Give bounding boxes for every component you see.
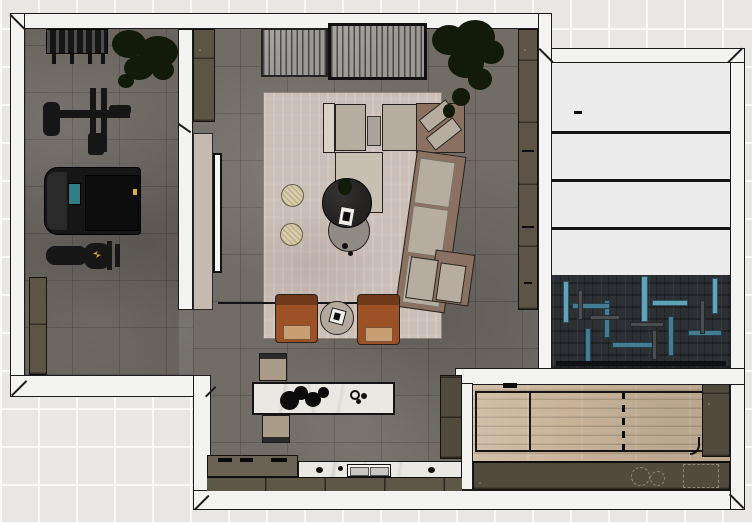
slatted-sideboard-framed[interactable] <box>328 23 427 80</box>
shelf-band-divider <box>552 131 730 134</box>
table-sprig-plant <box>338 178 352 195</box>
sofa-tray <box>367 116 381 146</box>
rack-leg <box>52 54 56 64</box>
plant-foliage <box>468 68 492 90</box>
gray-plank <box>590 315 620 320</box>
shelf-mark <box>522 226 534 228</box>
counter-item <box>338 466 343 471</box>
gray-plank <box>578 290 583 320</box>
plant-foliage <box>118 74 134 88</box>
sofa-cushion[interactable] <box>382 104 418 151</box>
treadmill-belt <box>85 175 139 231</box>
wall-left <box>10 13 25 397</box>
teal-plank <box>563 281 569 323</box>
cooktop-burner <box>240 458 253 462</box>
stool-backrest <box>263 437 289 442</box>
herringbone-threshold <box>556 361 726 366</box>
shelf-handle-mark <box>574 111 582 114</box>
rack-leg <box>88 54 92 64</box>
storage-room-floor <box>552 63 730 275</box>
treadmill-logo <box>133 189 137 195</box>
sofa-arm[interactable] <box>323 103 335 153</box>
shelf-band-divider <box>552 227 730 230</box>
sliding-track-dashes <box>622 393 625 451</box>
island-dot-item <box>361 393 367 399</box>
machine-pedal <box>88 133 104 155</box>
plant-foliage <box>452 88 470 106</box>
sofa-cushion[interactable] <box>335 104 366 151</box>
counter-item <box>316 467 323 473</box>
wall-shelf-unit[interactable] <box>518 29 538 310</box>
tv-panel[interactable] <box>213 153 222 273</box>
gym-passage-floor <box>178 310 193 375</box>
plant-foliage <box>152 60 174 80</box>
gray-plank <box>652 330 657 360</box>
decor-blob <box>318 387 329 398</box>
chair-seat-cushion <box>365 327 393 342</box>
wall-hall-bottom <box>455 368 745 385</box>
shelf-mark <box>524 282 532 284</box>
wall-gym-bottom <box>10 375 206 397</box>
media-wall-panel <box>193 133 213 310</box>
stool-backrest <box>260 354 286 359</box>
corner-cabinet[interactable] <box>193 29 215 122</box>
teal-plank <box>688 330 722 336</box>
chair-arm-shade <box>358 295 399 305</box>
cabinet-fronts[interactable] <box>207 477 462 491</box>
weight-stack <box>43 102 60 136</box>
sink-basin <box>370 467 389 476</box>
sofa-cushion <box>414 157 456 208</box>
pouf[interactable] <box>281 184 304 207</box>
rack-leg <box>101 54 105 64</box>
wood-seam <box>529 392 531 451</box>
cooktop-burner <box>271 458 287 462</box>
sofa-chaise-cushion <box>435 262 466 303</box>
gray-plank <box>630 322 664 327</box>
gym-plant[interactable] <box>106 24 186 94</box>
plant-foliage <box>443 104 455 118</box>
table-decor-dot <box>342 243 348 249</box>
treadmill-console <box>47 172 67 230</box>
machine-seat <box>109 105 131 114</box>
dumbbell-rack[interactable] <box>46 29 108 54</box>
wall-woodroom-left <box>461 383 473 490</box>
teal-plank <box>652 300 688 306</box>
island-decor-cluster <box>278 383 334 414</box>
decor-swirl <box>631 467 650 486</box>
kitchen-sink[interactable] <box>347 464 391 477</box>
gray-plank <box>700 300 705 334</box>
gym-storage-cabinet[interactable] <box>29 277 47 375</box>
bench-pad <box>46 246 88 265</box>
pouf[interactable] <box>280 223 303 246</box>
wall-mid-vertical <box>538 13 552 385</box>
wall-storage-top <box>540 48 745 63</box>
treadmill-screen <box>68 183 81 205</box>
strength-machine[interactable] <box>43 88 133 156</box>
treadmill[interactable] <box>44 167 141 235</box>
bench-wheel <box>115 244 120 267</box>
weight-bench[interactable] <box>44 241 122 271</box>
chair-arm-shade <box>276 295 317 305</box>
bench-wheel <box>107 241 112 270</box>
kitchen-tall-cabinet[interactable] <box>440 375 462 459</box>
chair-seat-cushion <box>283 325 311 340</box>
teal-plank <box>641 276 648 322</box>
cooktop-burner <box>218 458 232 462</box>
floor-plan <box>0 0 752 524</box>
lounge-chair[interactable] <box>275 294 318 343</box>
tall-plant[interactable] <box>425 15 510 125</box>
rack-leg <box>70 54 74 64</box>
slatted-sideboard[interactable] <box>261 28 328 77</box>
island-dot-item <box>356 399 361 404</box>
counter-item <box>428 467 435 473</box>
lounge-chair[interactable] <box>357 294 400 345</box>
teal-plank <box>668 316 674 356</box>
bar-stool[interactable] <box>262 415 290 443</box>
sink-basin <box>350 467 369 476</box>
table-decor-dot <box>348 251 353 256</box>
wall-bottom <box>193 490 745 510</box>
bar-stool[interactable] <box>259 353 287 381</box>
teal-plank <box>612 342 654 348</box>
teal-plank <box>712 278 718 314</box>
shelf-mark <box>522 150 534 152</box>
wardrobe[interactable] <box>702 383 730 457</box>
shelf-band-divider <box>552 179 730 182</box>
wood-floor-frame <box>475 391 720 452</box>
decor-tray <box>683 464 719 488</box>
wall-mounted-item <box>503 383 517 388</box>
sofa-chaise-cushion <box>405 256 439 301</box>
decor-swirl <box>650 471 665 486</box>
teal-plank <box>585 328 591 362</box>
wall-right <box>730 48 745 510</box>
